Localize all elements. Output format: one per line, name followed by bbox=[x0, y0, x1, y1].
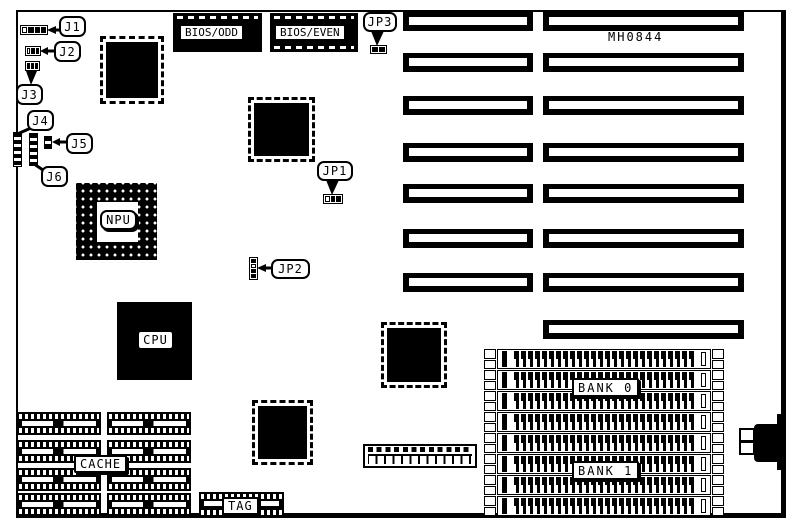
cpu-label: CPU bbox=[137, 330, 174, 350]
simm-socket bbox=[484, 433, 724, 453]
expansion-slot bbox=[543, 184, 744, 203]
label-j5: J5 bbox=[66, 133, 93, 154]
label-j1: J1 bbox=[59, 16, 86, 37]
qfp-chip-center bbox=[248, 97, 315, 162]
label-j4: J4 bbox=[27, 110, 54, 131]
expansion-slot bbox=[403, 12, 533, 31]
keyboard-connector-body bbox=[754, 424, 780, 462]
jumper-jp2 bbox=[249, 257, 258, 280]
label-j3: J3 bbox=[16, 84, 43, 105]
tag-label: TAG bbox=[222, 497, 259, 515]
cache-socket bbox=[17, 493, 101, 516]
pin-header-j4 bbox=[13, 132, 22, 167]
cache-label: CACHE bbox=[74, 455, 127, 473]
dip-switch-block bbox=[363, 444, 477, 468]
label-jp3: JP3 bbox=[363, 12, 397, 32]
qfp-chip-bottom bbox=[252, 400, 313, 465]
jumper-j5 bbox=[44, 136, 52, 149]
cache-socket bbox=[17, 412, 101, 435]
bank1-label: BANK 1 bbox=[572, 461, 639, 480]
expansion-slot bbox=[403, 53, 533, 72]
simm-socket bbox=[484, 412, 724, 432]
jumper-j2 bbox=[25, 46, 41, 56]
expansion-slot bbox=[403, 143, 533, 162]
jumper-j1 bbox=[20, 25, 48, 35]
jumper-jp1 bbox=[323, 194, 343, 204]
expansion-slot bbox=[543, 12, 744, 31]
simm-socket bbox=[484, 496, 724, 516]
bank0-label: BANK 0 bbox=[572, 378, 639, 397]
cache-socket bbox=[107, 493, 191, 516]
label-jp1: JP1 bbox=[317, 161, 353, 181]
bios-even-label: BIOS/EVEN bbox=[274, 24, 346, 41]
expansion-slot bbox=[403, 229, 533, 248]
bios-odd-label: BIOS/ODD bbox=[179, 24, 244, 41]
label-j6: J6 bbox=[41, 166, 68, 187]
motherboard-diagram: MH0844 J1 J2 J3 J4 J5 J6 BIOS/ODD BIOS/E… bbox=[0, 0, 791, 527]
expansion-slot bbox=[543, 143, 744, 162]
expansion-slot bbox=[543, 53, 744, 72]
board-id-text: MH0844 bbox=[608, 30, 663, 44]
keyboard-connector-pin bbox=[739, 441, 755, 455]
pin-header-j6 bbox=[29, 133, 38, 166]
npu-label: NPU bbox=[100, 210, 137, 230]
qfp-chip-topleft bbox=[100, 36, 164, 104]
expansion-slot bbox=[543, 96, 744, 115]
qfp-chip-right bbox=[381, 322, 447, 388]
expansion-slot bbox=[543, 273, 744, 292]
jumper-jp3 bbox=[370, 45, 387, 54]
label-jp2: JP2 bbox=[271, 259, 310, 279]
expansion-slot bbox=[543, 229, 744, 248]
expansion-slot bbox=[403, 96, 533, 115]
jumper-j3 bbox=[25, 61, 40, 71]
cache-socket bbox=[107, 412, 191, 435]
keyboard-connector-pin bbox=[739, 428, 755, 442]
expansion-slot bbox=[403, 273, 533, 292]
expansion-slot bbox=[403, 184, 533, 203]
simm-socket bbox=[484, 349, 724, 369]
label-j2: J2 bbox=[54, 41, 81, 62]
expansion-slot bbox=[543, 320, 744, 339]
